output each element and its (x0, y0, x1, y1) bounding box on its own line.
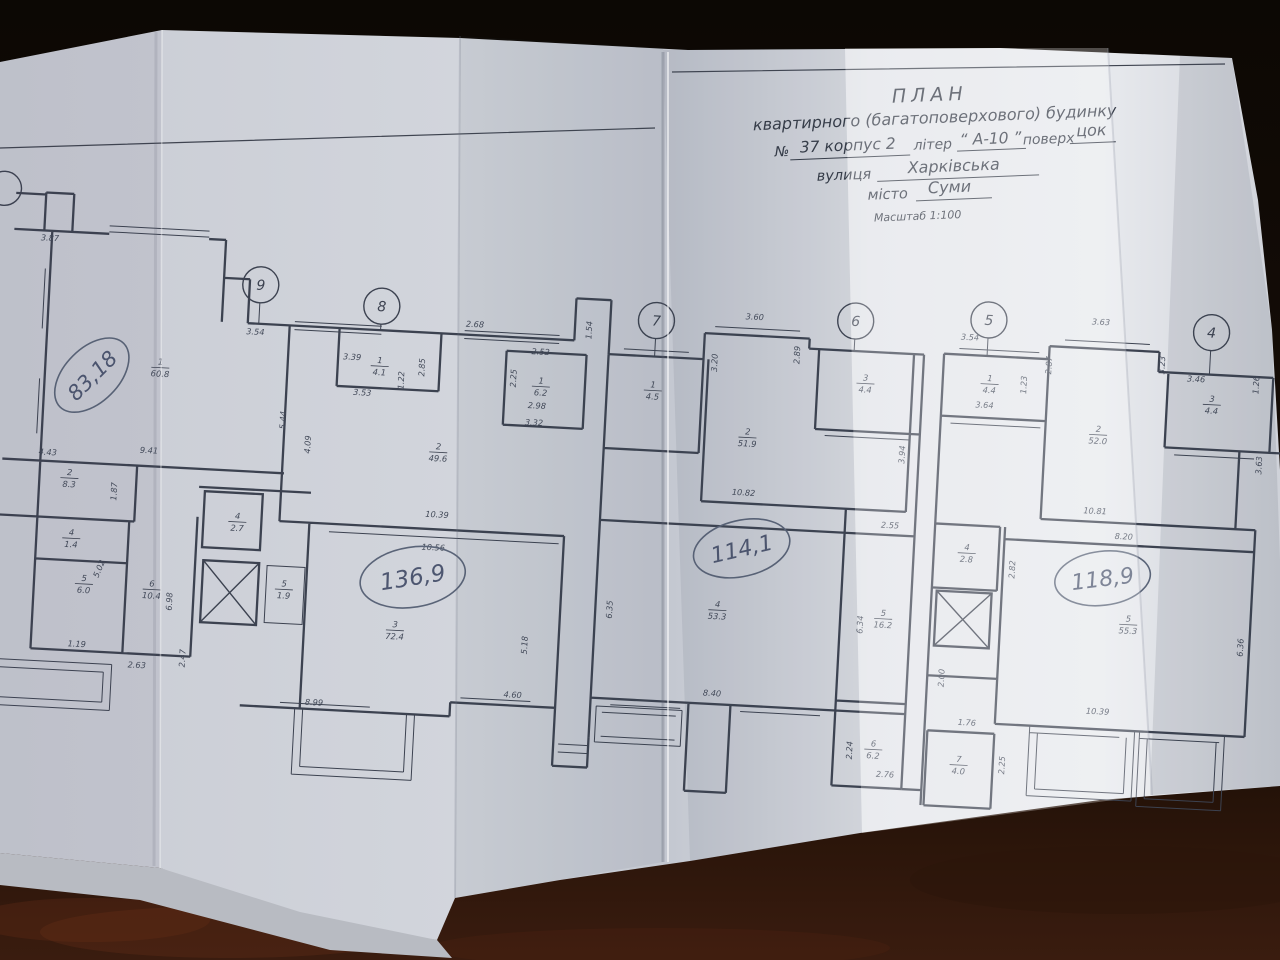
svg-text:1.9: 1.9 (277, 590, 291, 601)
axis-number: 8 (377, 299, 387, 315)
plan-photo-svg: 9 8 7 6 5 4 160.8 28.3 41.4 56.0 610.4 2… (0, 0, 1280, 960)
dim-label: 2.47 (177, 648, 188, 668)
dim-label: 2.85 (416, 358, 427, 377)
axis-number: 9 (256, 278, 266, 294)
dim-label: 10.39 (425, 509, 449, 520)
photo-of-floor-plan: 9 8 7 6 5 4 160.8 28.3 41.4 56.0 610.4 2… (0, 0, 1280, 960)
dim-label: 6.98 (164, 592, 175, 611)
dim-label: 3.23 (1156, 356, 1167, 375)
light-band (845, 48, 1152, 833)
svg-text:3: 3 (392, 619, 398, 629)
svg-text:2.7: 2.7 (230, 523, 244, 534)
shade-left-edge (0, 30, 162, 868)
dim-label: 1.22 (396, 371, 407, 390)
svg-text:5: 5 (281, 578, 287, 588)
shade-mid-left (455, 36, 663, 898)
svg-text:1: 1 (377, 355, 383, 365)
svg-text:49.6: 49.6 (428, 453, 447, 464)
dim-label: 3.53 (353, 387, 372, 398)
dim-label: 5.44 (277, 411, 288, 430)
dim-label: 3.54 (246, 326, 265, 337)
svg-text:4.1: 4.1 (372, 367, 386, 378)
fold-crease (154, 32, 156, 866)
svg-text:4: 4 (235, 511, 241, 521)
dim-label: 3.39 (343, 351, 362, 362)
shade-right-of-fold (663, 48, 862, 861)
svg-text:2: 2 (436, 441, 442, 451)
dim-label: 8.99 (305, 697, 324, 708)
dim-label: 4.09 (302, 435, 313, 454)
svg-text:72.4: 72.4 (385, 631, 404, 642)
